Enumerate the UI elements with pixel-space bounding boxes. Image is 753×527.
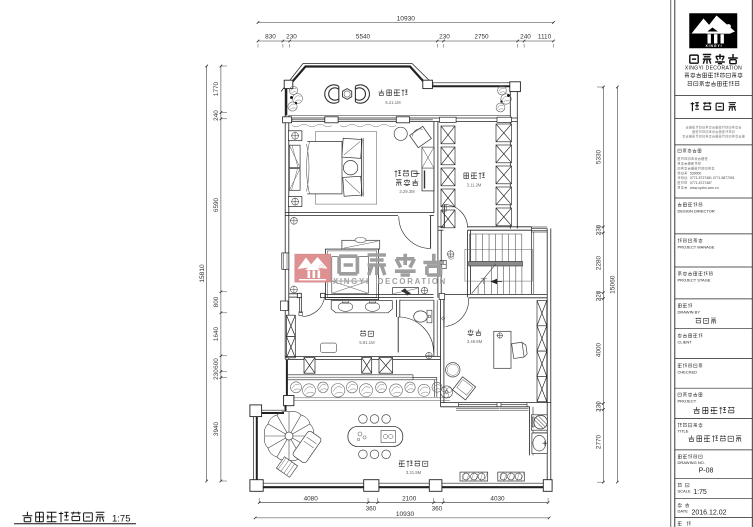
svg-text:TITLE: TITLE xyxy=(678,429,689,434)
svg-text:830: 830 xyxy=(265,34,276,41)
svg-text:3.29.3M: 3.29.3M xyxy=(399,189,415,194)
svg-text:1640: 1640 xyxy=(213,326,220,341)
svg-text:230: 230 xyxy=(596,401,603,412)
svg-text:X I N G Y I: X I N G Y I xyxy=(705,44,721,48)
svg-text:600: 600 xyxy=(213,358,220,369)
svg-text:DRAWING NO.: DRAWING NO. xyxy=(678,460,705,465)
svg-text:10930: 10930 xyxy=(396,511,415,518)
svg-text:360: 360 xyxy=(366,506,377,513)
svg-text:CLIENT: CLIENT xyxy=(678,340,693,345)
svg-text:1110: 1110 xyxy=(538,34,552,41)
svg-text:5540: 5540 xyxy=(356,34,371,41)
svg-text:1:75: 1:75 xyxy=(693,489,707,496)
svg-text:2016.12.02: 2016.12.02 xyxy=(691,510,726,517)
svg-text:3.11.2M: 3.11.2M xyxy=(467,183,482,188)
svg-text:XINGYI DECORATION: XINGYI DECORATION xyxy=(333,277,447,286)
svg-text:2100: 2100 xyxy=(402,496,417,503)
svg-text:0771-5727481 0771-5877091: 0771-5727481 0771-5877091 xyxy=(690,176,735,180)
svg-text:220: 220 xyxy=(596,290,603,301)
svg-text:5330: 5330 xyxy=(596,149,603,164)
svg-text:5.81.1M: 5.81.1M xyxy=(359,340,375,345)
svg-text:0771-5727487: 0771-5727487 xyxy=(690,181,712,185)
svg-text:5.21.1M: 5.21.1M xyxy=(385,100,401,105)
svg-text:15060: 15060 xyxy=(610,275,617,294)
svg-text:10930: 10930 xyxy=(397,16,416,23)
svg-text:PROJECT STAGE: PROJECT STAGE xyxy=(678,278,711,283)
svg-text:CHECKED: CHECKED xyxy=(678,370,698,375)
svg-text:2750: 2750 xyxy=(474,34,489,41)
svg-text:800: 800 xyxy=(213,296,220,307)
svg-text:240: 240 xyxy=(520,34,531,41)
svg-text:DESIGN DIRECTOR: DESIGN DIRECTOR xyxy=(678,209,715,214)
svg-text:R: R xyxy=(449,255,452,260)
svg-text:360: 360 xyxy=(432,506,443,513)
svg-text:530000: 530000 xyxy=(690,171,701,175)
svg-text:230: 230 xyxy=(596,224,603,235)
svg-text:P-08: P-08 xyxy=(699,468,714,475)
svg-text:3.31.9M: 3.31.9M xyxy=(406,470,422,475)
svg-text:DATE: DATE xyxy=(678,509,689,514)
svg-text:1:75: 1:75 xyxy=(112,514,131,525)
svg-text:230: 230 xyxy=(213,369,220,380)
svg-text:230: 230 xyxy=(286,34,297,41)
svg-text:1770: 1770 xyxy=(213,81,220,96)
svg-text:3.46.6M: 3.46.6M xyxy=(467,339,483,344)
svg-text:DRAWIN BY: DRAWIN BY xyxy=(678,310,701,315)
svg-text:2280: 2280 xyxy=(596,255,603,270)
svg-text:6590: 6590 xyxy=(213,197,220,212)
svg-text:15810: 15810 xyxy=(199,264,206,283)
svg-text:PROJECT MANAGE: PROJECT MANAGE xyxy=(678,245,715,250)
svg-text:XINGYI DECORATION: XINGYI DECORATION xyxy=(685,66,742,72)
svg-text:www.xyzhs.com.cn: www.xyzhs.com.cn xyxy=(690,186,719,190)
svg-text:240: 240 xyxy=(213,110,220,121)
svg-text:PROJECT: PROJECT xyxy=(678,399,697,404)
svg-text:3940: 3940 xyxy=(213,421,220,436)
svg-text:4000: 4000 xyxy=(596,342,603,357)
svg-text:4030: 4030 xyxy=(490,496,505,503)
svg-text:4080: 4080 xyxy=(304,496,319,503)
svg-text:230: 230 xyxy=(439,34,450,41)
svg-text:SCALE: SCALE xyxy=(678,489,691,494)
svg-text:2770: 2770 xyxy=(596,434,603,449)
